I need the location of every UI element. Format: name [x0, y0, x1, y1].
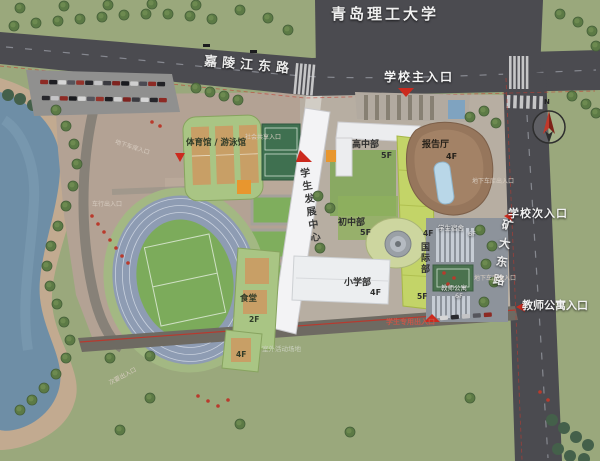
compass-north-label: N	[544, 99, 550, 106]
label-auditorium: 报告厅	[422, 141, 449, 150]
floor-international-bottom: 5F	[417, 293, 427, 301]
main-gate	[355, 92, 470, 122]
label-middle-school: 初中部	[338, 219, 365, 228]
floor-dorm: 6F	[468, 231, 476, 238]
floor-middle-school: 5F	[360, 229, 371, 237]
tennis-courts	[262, 124, 300, 180]
floor-international-top: 4F	[423, 230, 433, 238]
floor-canteen-annex: 4F	[236, 351, 246, 359]
label-secondary-entrance: 学校次入口	[508, 208, 568, 219]
floor-canteen: 2F	[249, 316, 259, 324]
label-dorm: 学生宿舍	[438, 225, 464, 232]
label-international: 国际部	[419, 242, 428, 275]
label-gym-pool: 体育馆 / 游泳馆	[186, 139, 246, 148]
floor-primary-school: 4F	[370, 289, 381, 297]
mini-label-garage-entrance-east2: 地下车库出入口	[474, 276, 516, 282]
label-university: 青岛理工大学	[331, 7, 439, 22]
label-canteen: 食堂	[240, 295, 257, 304]
label-high-school: 高中部	[352, 141, 379, 150]
gym-canopy	[237, 180, 251, 194]
label-teacher-apartment: 教师公寓	[441, 285, 467, 292]
floor-auditorium: 4F	[446, 153, 457, 161]
label-main-entrance: 学校主入口	[384, 71, 454, 83]
floor-teacher-apartment: 6F	[455, 293, 463, 300]
floor-high-school: 5F	[381, 152, 392, 160]
mini-label-shared-entrance: 社会共享入口	[245, 135, 281, 141]
mini-label-west-vehicle-entrance: 车行出入口	[92, 202, 122, 208]
parking-lot	[26, 70, 180, 116]
label-primary-school: 小学部	[344, 279, 371, 288]
campus-site-plan: 青岛理工大学 嘉陵江东路 学校主入口 体育馆 / 游泳馆 学生发展中心 高中部 …	[0, 0, 600, 461]
gym-building	[183, 115, 264, 202]
mini-label-outdoor-field: 室外活动场地	[262, 346, 301, 353]
mini-label-student-entrance: 学生专用出入口	[386, 319, 435, 326]
label-teacher-entrance: 教师公寓入口	[522, 300, 588, 311]
mini-label-garage-entrance-east: 地下车库出入口	[472, 179, 514, 185]
compass-icon	[533, 111, 565, 143]
